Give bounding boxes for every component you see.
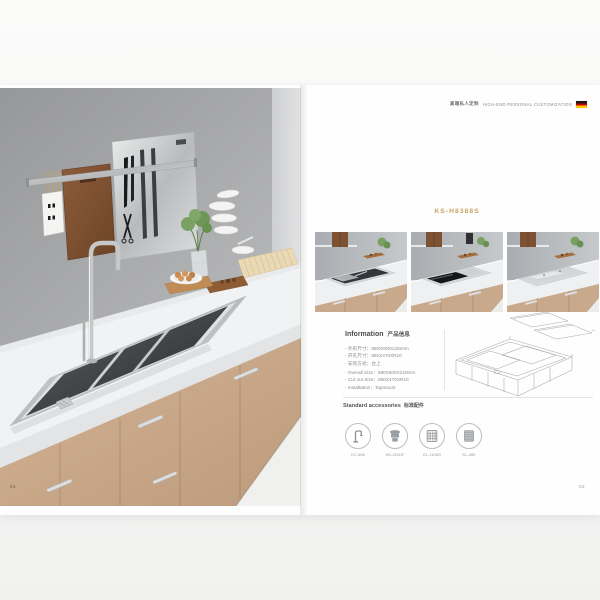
drain-waste-icon: [382, 423, 408, 449]
spec-line: Cut out Size：850X470XR10: [345, 376, 445, 383]
page-number-left: 01: [10, 484, 16, 489]
spec-list-en: Overall Size：880X500X220mm Cut out Size：…: [345, 369, 445, 391]
accessory-label: KL-J106G: [423, 452, 441, 457]
faucet-icon: [345, 423, 371, 449]
page-fold: [300, 85, 308, 515]
gallery-photo-sink-open: [315, 232, 407, 312]
accessories-heading-en: Standard accessories: [343, 403, 401, 409]
gallery-photo-sink-covered: [507, 232, 599, 312]
horizontal-divider: [343, 397, 593, 398]
spec-line: Overall Size：880X500X220mm: [345, 369, 445, 376]
gallery-photo-sink-half-covered: [411, 232, 503, 312]
spec-line: 外形尺寸：880X500X220mm: [345, 345, 445, 352]
accessory-label: KC-606: [351, 452, 365, 457]
product-gallery: [315, 232, 599, 312]
spec-list-zh: 外形尺寸：880X500X220mm 开孔尺寸：850X470XR10 安装方式…: [345, 345, 445, 367]
accessory-label: KD-211DF: [386, 452, 405, 457]
roll-mat-icon: [456, 423, 482, 449]
info-heading: Information产品信息: [345, 330, 410, 338]
header-zh-text: 高端私人定制: [450, 101, 479, 107]
accessories-heading-zh: 标准配件: [404, 403, 424, 409]
header: 高端私人定制 HIGH-END PERSONAL CUSTOMIZATION: [450, 101, 587, 108]
accessory-item: KD-211DF: [382, 423, 408, 457]
spec-line: 安装方式：台上: [345, 360, 445, 367]
kitchen-photo: [0, 88, 301, 506]
kitchen-photo-art: [0, 88, 301, 506]
accessory-item: KL-480: [456, 423, 482, 457]
accessory-item: KL-J106G: [419, 423, 445, 457]
technical-drawing: [450, 310, 598, 415]
germany-flag-icon: [576, 101, 587, 108]
accessory-label: KL-480: [463, 452, 476, 457]
accessory-item: KC-606: [345, 423, 371, 457]
vertical-divider: [444, 330, 445, 390]
info-heading-zh: 产品信息: [388, 332, 410, 338]
accessories-row: KC-606 KD-211DF: [345, 423, 482, 457]
product-model-title: KS-H8388S: [315, 208, 599, 215]
page-number-right: 02: [579, 484, 585, 489]
catalog-spread: 高端私人定制 HIGH-END PERSONAL CUSTOMIZATION K…: [0, 0, 600, 600]
header-en-text: HIGH-END PERSONAL CUSTOMIZATION: [483, 102, 572, 107]
spec-line: 开孔尺寸：850X470XR10: [345, 352, 445, 359]
accessories-heading: Standard accessories标准配件: [343, 402, 424, 409]
spec-line: Installation：Topmount: [345, 384, 445, 391]
info-heading-en: Information: [345, 331, 384, 338]
rinse-basket-icon: [419, 423, 445, 449]
